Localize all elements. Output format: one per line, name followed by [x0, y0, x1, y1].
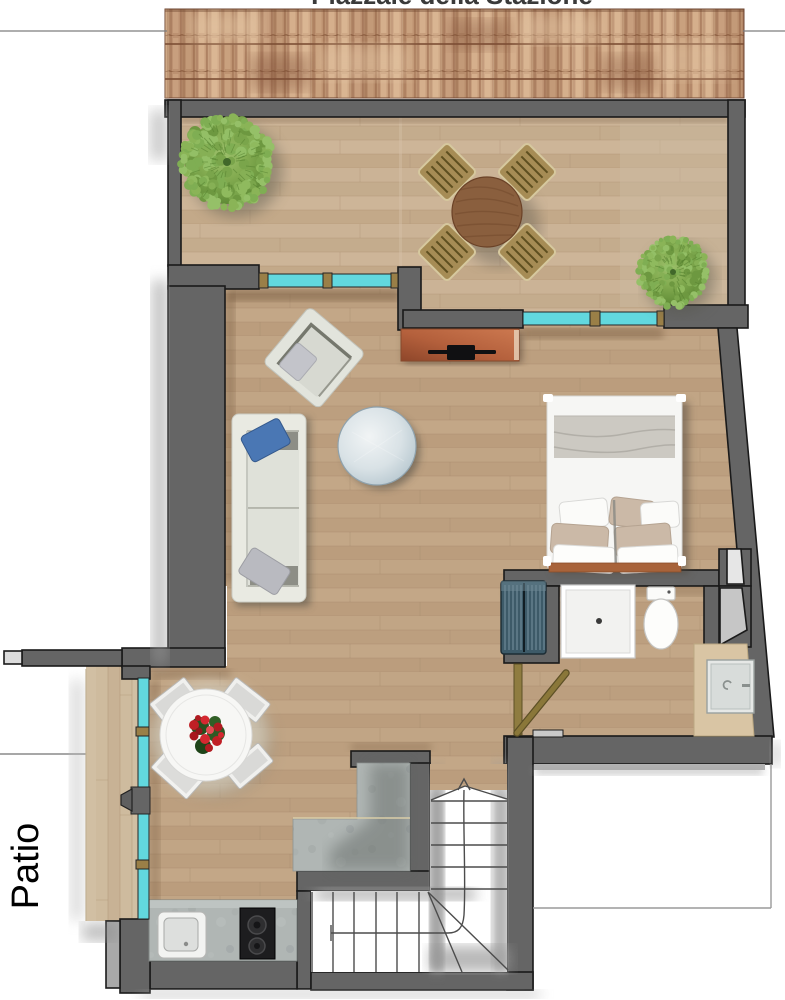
svg-text:Patio: Patio: [5, 823, 47, 910]
svg-text:Piazzale della Stazione: Piazzale della Stazione: [311, 0, 593, 10]
